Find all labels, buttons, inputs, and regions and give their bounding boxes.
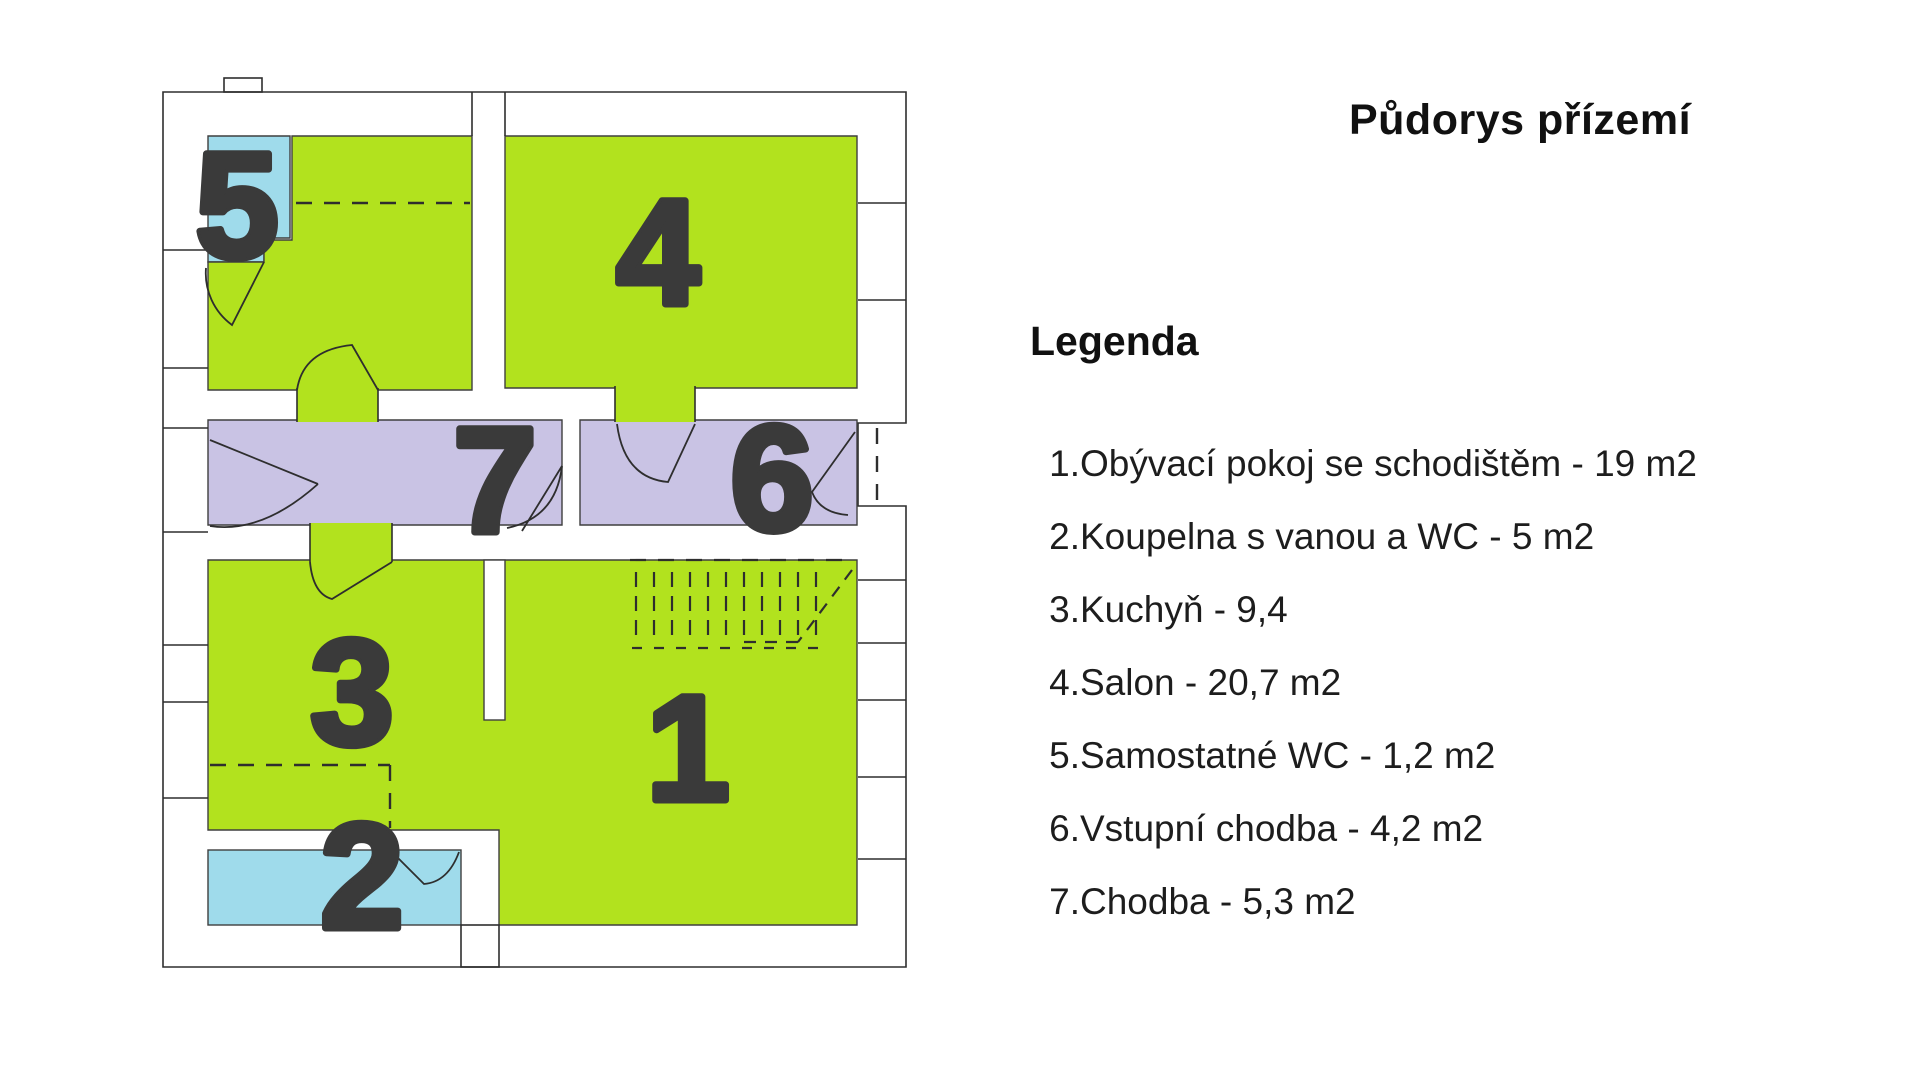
legend-item-7: 7.Chodba - 5,3 m2 [1030, 865, 1697, 938]
legend-item-3: 3.Kuchyň - 9,4 [1030, 573, 1697, 646]
legend-item-label: Obývací pokoj se schodištěm - 19 m2 [1080, 427, 1697, 500]
room-number-4: 4 [616, 168, 699, 336]
legend-item-number: 6. [1030, 792, 1080, 865]
legend-item-label: Kuchyň - 9,4 [1080, 573, 1288, 646]
legend-item-label: Koupelna s vanou a WC - 5 m2 [1080, 500, 1594, 573]
legend-item-4: 4.Salon - 20,7 m2 [1030, 646, 1697, 719]
door-opening-6-to-room4 [615, 386, 695, 422]
legend-item-label: Vstupní chodba - 4,2 m2 [1080, 792, 1483, 865]
legend-item-6: 6.Vstupní chodba - 4,2 m2 [1030, 792, 1697, 865]
door-opening-7-to-room3 [310, 523, 392, 562]
wall-notch [224, 78, 262, 92]
legend-item-label: Samostatné WC - 1,2 m2 [1080, 719, 1495, 792]
legend: Legenda 1.Obývací pokoj se schodištěm - … [1030, 318, 1697, 938]
room-number-7: 7 [453, 396, 536, 564]
door-opening-7-to-upper-left [297, 388, 378, 422]
wall-tab-bottom [461, 925, 499, 967]
legend-item-number: 2. [1030, 500, 1080, 573]
page-title: Půdorys přízemí [1260, 96, 1780, 145]
legend-item-1: 1.Obývací pokoj se schodištěm - 19 m2 [1030, 427, 1697, 500]
room-number-3: 3 [310, 608, 393, 776]
legend-item-5: 5.Samostatné WC - 1,2 m2 [1030, 719, 1697, 792]
left-wall-joints [163, 250, 208, 798]
right-wall-joints [858, 203, 906, 859]
top-wall-joints [472, 92, 505, 136]
room-number-2: 2 [320, 792, 403, 960]
room-number-1: 1 [646, 664, 729, 832]
floor-plan-page: 5 4 7 6 3 2 1 Půdorys přízemí Legenda 1.… [0, 0, 1920, 1080]
legend-item-number: 4. [1030, 646, 1080, 719]
room-number-5: 5 [195, 121, 278, 289]
legend-item-number: 1. [1030, 427, 1080, 500]
legend-item-2: 2.Koupelna s vanou a WC - 5 m2 [1030, 500, 1697, 573]
legend-item-number: 5. [1030, 719, 1080, 792]
legend-item-number: 7. [1030, 865, 1080, 938]
room-6-area [580, 420, 857, 525]
wall-stub-3-1 [484, 560, 505, 720]
legend-item-label: Salon - 20,7 m2 [1080, 646, 1341, 719]
room-number-6: 6 [730, 394, 813, 562]
legend-item-number: 3. [1030, 573, 1080, 646]
legend-item-label: Chodba - 5,3 m2 [1080, 865, 1356, 938]
legend-heading: Legenda [1030, 318, 1697, 365]
